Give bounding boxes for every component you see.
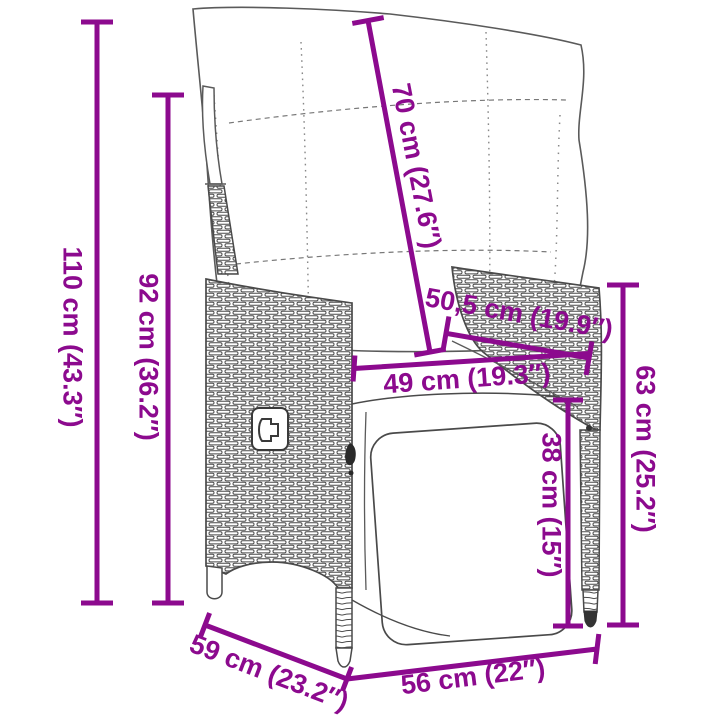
dim-label-armrest-height: 63 cm (25.2″) xyxy=(632,365,659,533)
dimension-diagram: 110 cm (43.3″) 92 cm (36.2″) 70 cm (27.6… xyxy=(0,0,720,720)
chair-left-side-panel xyxy=(206,279,352,667)
dim-label-seat-height: 38 cm (15″) xyxy=(538,432,565,577)
dim-label-backrest-height: 92 cm (36.2″) xyxy=(135,273,162,441)
dim-label-total-height: 110 cm (43.3″) xyxy=(59,246,86,427)
chair-illustration xyxy=(0,0,720,720)
recline-knob-icon xyxy=(252,408,288,450)
